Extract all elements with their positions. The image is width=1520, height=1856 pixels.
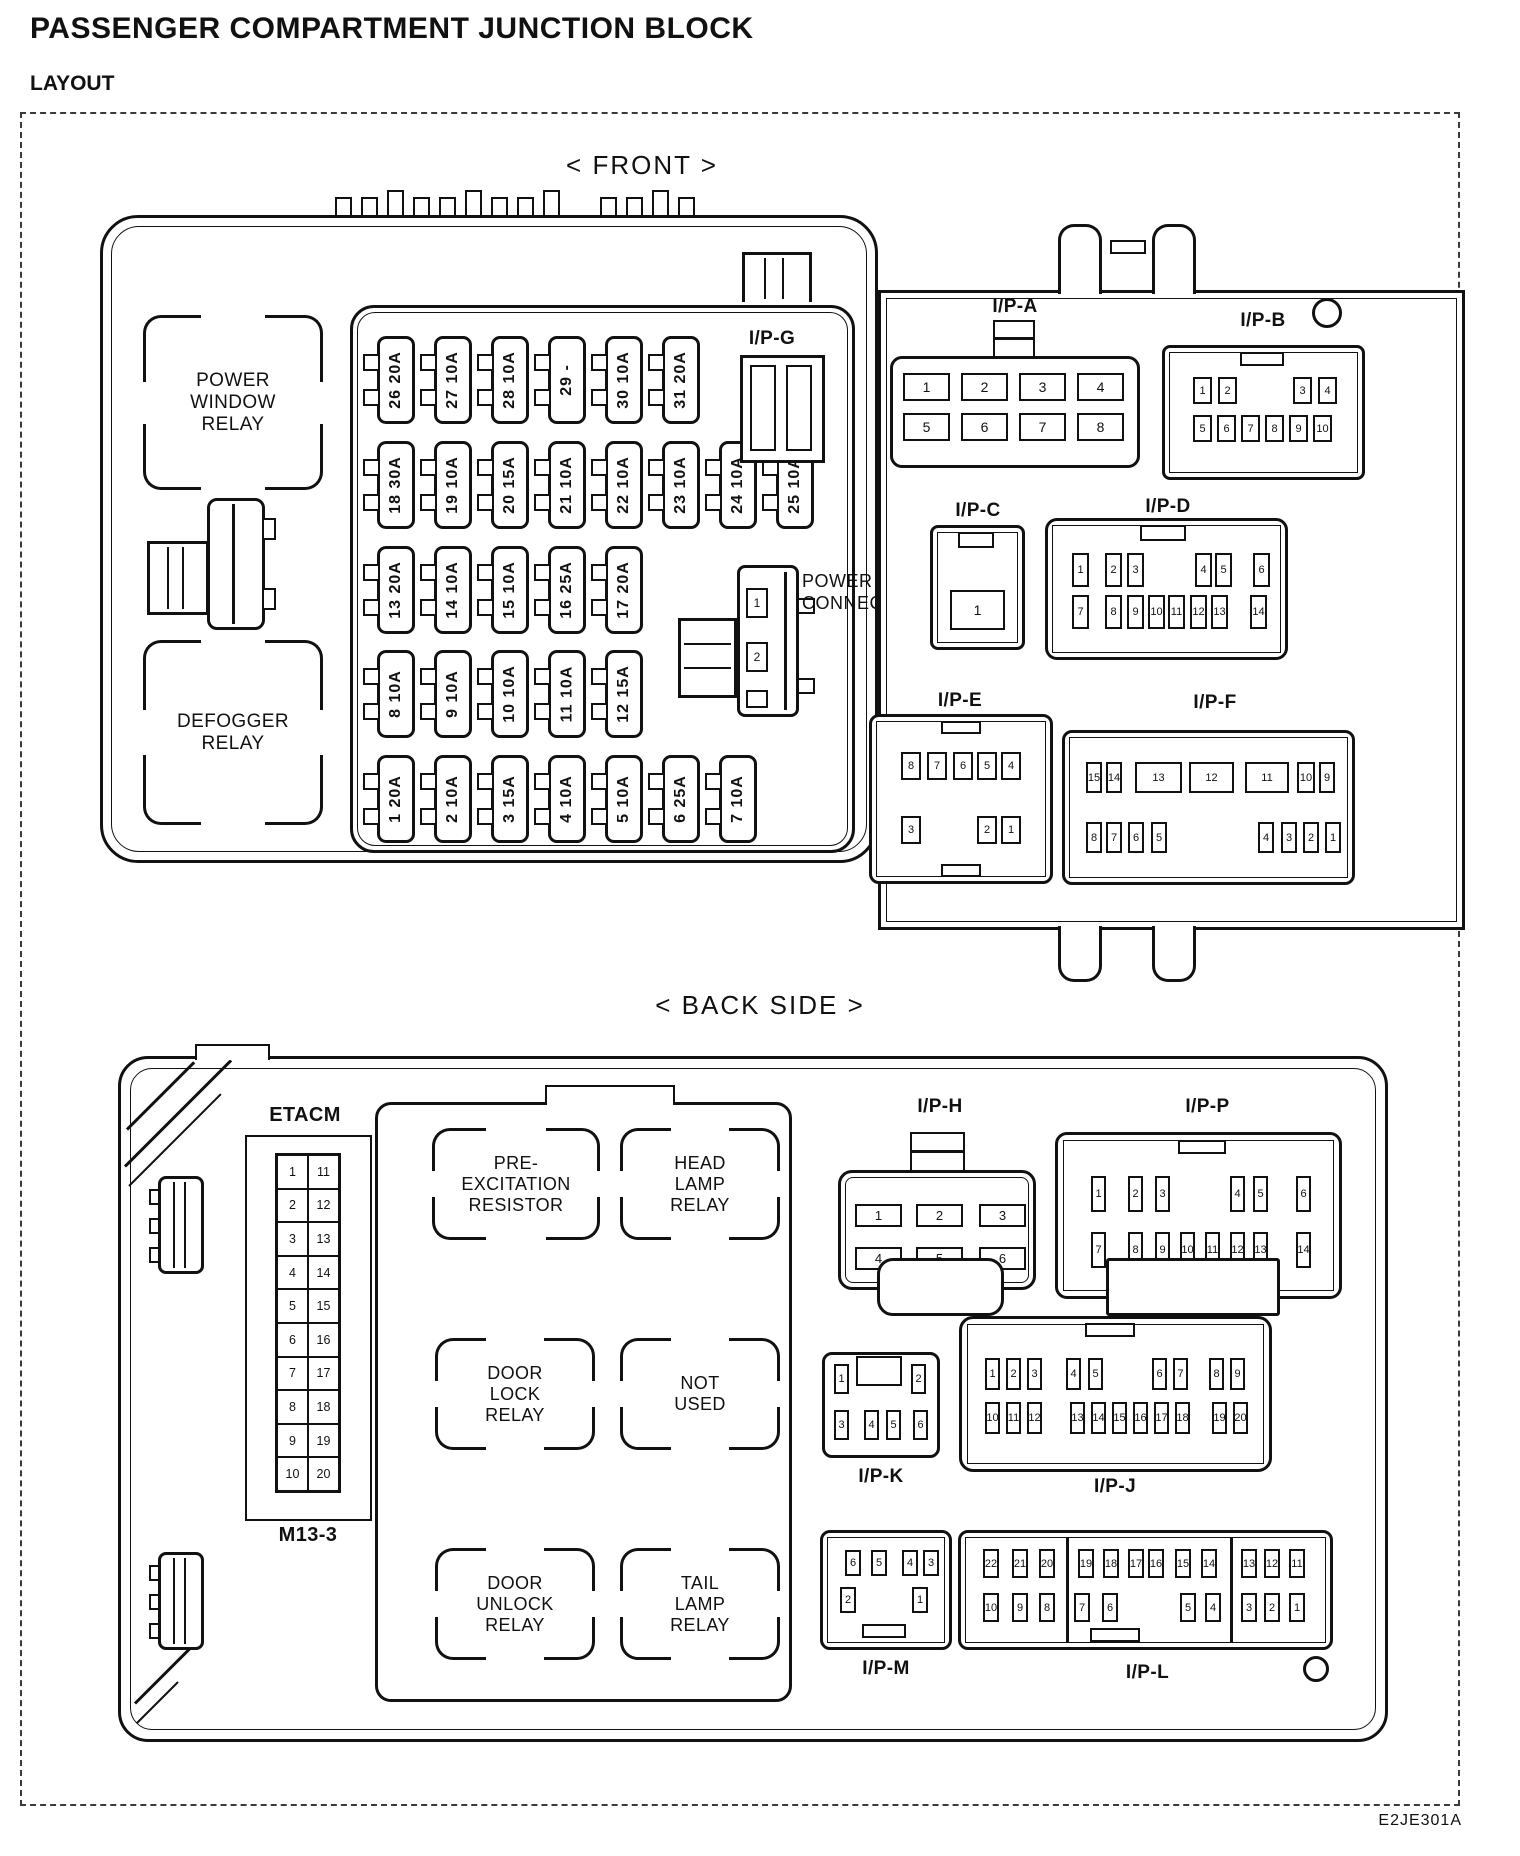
pin-cell: 4 — [1258, 822, 1274, 853]
ipl-notch — [1090, 1628, 1140, 1642]
ipg-label: I/P-G — [707, 328, 837, 350]
etacm-pin-right: 17 — [308, 1357, 339, 1391]
pin-cell: 4 — [1195, 553, 1212, 587]
ipa-label: I/P-A — [940, 296, 1090, 318]
pin-cell: 1 — [1091, 1176, 1106, 1212]
relay-label-line: HEAD — [674, 1153, 726, 1174]
pin-cell: 5 — [871, 1550, 887, 1576]
fuse: 27 10A — [434, 336, 472, 424]
power-connector-prong — [797, 678, 815, 694]
pin-cell: 5 — [1193, 415, 1212, 442]
etacm-pin-left: 3 — [277, 1222, 308, 1256]
ipe-pin-row-2: 321 — [901, 816, 1021, 844]
pin-cell: 15 — [1175, 1549, 1191, 1578]
ipk-label: I/P-K — [822, 1466, 940, 1488]
ipg-teeth — [742, 252, 812, 302]
pin-cell: 14 — [1296, 1232, 1311, 1268]
pin-cell: 9 — [1289, 415, 1308, 442]
pin-cell: 9 — [1319, 762, 1335, 793]
pin-cell: 3 — [1019, 373, 1066, 401]
pin-cell: 6 — [1128, 822, 1144, 853]
ipp-notch — [1178, 1140, 1226, 1154]
fuse: 29 - — [548, 336, 586, 424]
ipf-label: I/P-F — [1150, 692, 1280, 714]
pin-cell: 9 — [1127, 595, 1144, 629]
pin-cell: 7 — [1241, 415, 1260, 442]
pin-cell: 8 — [1105, 595, 1122, 629]
pin-cell: 4 — [902, 1550, 918, 1576]
etacm-pin-row: 6 16 — [277, 1323, 339, 1357]
pin-cell: 7 — [1019, 413, 1066, 441]
relay-housing-step — [545, 1085, 675, 1105]
relay-label-line: DEFOGGER — [177, 711, 289, 733]
head-lamp-relay: HEADLAMPRELAY — [620, 1128, 780, 1240]
pin-cell: 4 — [1318, 377, 1337, 404]
side-connector-tab — [149, 1247, 160, 1263]
pin-cell: 6 — [1253, 553, 1270, 587]
iph-tab-line — [912, 1150, 963, 1153]
relay-label-line: RELAY — [670, 1195, 730, 1216]
pin-cell: 18 — [1103, 1549, 1119, 1578]
pin-cell: 4 — [1205, 1593, 1221, 1622]
pin-cell: 10 — [1297, 762, 1315, 793]
etacm-pin-row: 5 15 — [277, 1289, 339, 1323]
pin-cell: 13 — [1241, 1549, 1257, 1578]
pin-cell: 1 — [950, 590, 1005, 630]
pin-cell: 9 — [1012, 1593, 1028, 1622]
ipm-pin-row-2: 21 — [840, 1587, 928, 1613]
ipa-pin-row-2: 5678 — [903, 413, 1124, 441]
ipg-slot — [750, 365, 776, 451]
relay-label-line: RELAY — [485, 1405, 545, 1426]
panel-top-tab — [1058, 224, 1102, 294]
pin-cell: 1 — [1001, 816, 1021, 844]
relay-label-line: UNLOCK — [476, 1594, 553, 1615]
ipg-slot — [786, 365, 812, 451]
power-window-relay-label: POWERWINDOWRELAY — [143, 315, 323, 490]
pin-cell: 5 — [1088, 1358, 1103, 1390]
pin-cell: 4 — [1001, 752, 1021, 780]
relay-label-line: LAMP — [675, 1594, 726, 1615]
pin-cell: 2 — [916, 1204, 963, 1227]
relay-label-line: RESISTOR — [469, 1195, 564, 1216]
ipc-pin-row: 1 — [950, 590, 1005, 630]
pin-cell: 5 — [1151, 822, 1167, 853]
relay-label-line: RELAY — [485, 1615, 545, 1636]
pin-cell: 7 — [1072, 595, 1089, 629]
door-unlock-relay-label: DOORUNLOCKRELAY — [435, 1548, 595, 1660]
etacm-pin-left: 8 — [277, 1390, 308, 1424]
relay-label-line: LAMP — [675, 1174, 726, 1195]
etacm-pin-right: 19 — [308, 1424, 339, 1458]
pin-cell: 8 — [1209, 1358, 1224, 1390]
pin-cell: 4 — [1077, 373, 1124, 401]
pin-cell: 1 — [903, 373, 950, 401]
relay-label-line: USED — [674, 1394, 726, 1415]
relay-label-line: DOOR — [487, 1363, 543, 1384]
etacm-pin-right: 14 — [308, 1256, 339, 1290]
pin-cell: 17 — [1128, 1549, 1144, 1578]
ipj-notch — [1085, 1323, 1135, 1337]
power-connector-line — [784, 572, 787, 710]
pin-cell: 6 — [1102, 1593, 1118, 1622]
pin-cell: 21 — [1012, 1549, 1028, 1578]
pin-cell: 8 — [901, 752, 921, 780]
pin-cell: 10 — [1313, 415, 1332, 442]
pin-cell: 2 — [961, 373, 1008, 401]
pre-excitation-resistor: PRE-EXCITATIONRESISTOR — [432, 1128, 600, 1240]
ipb-pin-row-1: 1234 — [1193, 377, 1337, 404]
side-connector-tab — [149, 1594, 160, 1610]
figure-code: E2JE301A — [1276, 1812, 1462, 1830]
fuse: 21 10A — [548, 441, 586, 529]
pin-cell: 4 — [1230, 1176, 1245, 1212]
pin-cell: 3 — [979, 1204, 1026, 1227]
etacm-pin-right: 11 — [308, 1155, 339, 1189]
fuse-row-5: 1 20A2 10A3 15A4 10A5 10A6 25A7 10A — [377, 755, 757, 843]
pin-cell: 2 — [1303, 822, 1319, 853]
fuse: 7 10A — [719, 755, 757, 843]
pin-cell: 5 — [1253, 1176, 1268, 1212]
ipe-pin-row-1: 87654 — [901, 752, 1021, 780]
pin-cell: 3 — [834, 1410, 849, 1440]
relay-label-line: RELAY — [202, 414, 265, 436]
pin-cell: 3 — [1241, 1593, 1257, 1622]
etacm-pin-right: 13 — [308, 1222, 339, 1256]
ipf-pin-row-2: 87654321 — [1086, 822, 1341, 853]
fuse: 14 10A — [434, 546, 472, 634]
pin-cell: 8 — [1077, 413, 1124, 441]
pin-cell: 6 — [1217, 415, 1236, 442]
relay-label-line: POWER — [196, 370, 270, 392]
relay-label-line: EXCITATION — [461, 1174, 570, 1195]
pin-cell: 7 — [927, 752, 947, 780]
ipj-connector — [959, 1316, 1272, 1472]
fuse: 20 15A — [491, 441, 529, 529]
ipc-label: I/P-C — [928, 500, 1028, 522]
relay-label-line: NOT — [680, 1373, 719, 1394]
pin-cell: 1 — [1193, 377, 1212, 404]
page-title: PASSENGER COMPARTMENT JUNCTION BLOCK — [30, 12, 754, 46]
fuse: 19 10A — [434, 441, 472, 529]
ipe-connector — [869, 714, 1053, 884]
pin-cell: 14 — [1250, 595, 1267, 629]
fuse-row-3: 13 20A14 10A15 10A16 25A17 20A — [377, 546, 643, 634]
pin-cell: 1 — [1072, 553, 1089, 587]
pin-cell: 1 — [746, 588, 768, 618]
pin-cell: 4 — [864, 1410, 879, 1440]
etacm-pin-row: 10 20 — [277, 1457, 339, 1491]
ipk-pin-row-1: 12 — [834, 1364, 926, 1394]
pin-cell: 8 — [1265, 415, 1284, 442]
fuse: 12 15A — [605, 650, 643, 738]
pin-cell: 7 — [1106, 822, 1122, 853]
defogger-relay: DEFOGGERRELAY — [143, 640, 323, 825]
ipl-label: I/P-L — [1060, 1662, 1235, 1684]
pin-cell: 8 — [1086, 822, 1102, 853]
ipm-notch — [862, 1624, 906, 1638]
power-connector-pins: 12 — [746, 588, 768, 672]
etacm-pin-row: 9 19 — [277, 1424, 339, 1458]
etacm-pin-right: 20 — [308, 1457, 339, 1491]
fuse: 5 10A — [605, 755, 643, 843]
pin-cell: 14 — [1091, 1402, 1106, 1434]
pin-cell: 3 — [901, 816, 921, 844]
relay-label-line: RELAY — [670, 1615, 730, 1636]
power-connector-blank-cell — [746, 690, 768, 708]
pin-cell: 1 — [1325, 822, 1341, 853]
mid-connector-tab — [262, 518, 276, 540]
etacm-pin-row: 3 13 — [277, 1222, 339, 1256]
pin-cell: 11 — [1168, 595, 1185, 629]
pin-cell: 6 — [953, 752, 973, 780]
fuse: 3 15A — [491, 755, 529, 843]
pin-cell: 22 — [983, 1549, 999, 1578]
fuse: 15 10A — [491, 546, 529, 634]
etacm-pin-row: 2 12 — [277, 1189, 339, 1223]
pin-cell: 5 — [1215, 553, 1232, 587]
etacm-label: ETACM — [240, 1104, 370, 1127]
pin-cell: 7 — [1091, 1232, 1106, 1268]
pin-cell: 11 — [1245, 762, 1289, 793]
fuse: 16 25A — [548, 546, 586, 634]
fuse: 17 20A — [605, 546, 643, 634]
ipm-pin-row-1: 6543 — [845, 1550, 939, 1576]
pin-cell: 20 — [1233, 1402, 1248, 1434]
pin-cell: 19 — [1212, 1402, 1227, 1434]
relay-label-line: WINDOW — [190, 392, 276, 414]
ipd-pin-row-1: 123456 — [1072, 553, 1270, 587]
pin-cell: 5 — [977, 752, 997, 780]
side-connector-tab — [149, 1189, 160, 1205]
pin-cell: 9 — [1230, 1358, 1245, 1390]
ipl-pin-row-1: 222120191817161514131211 — [983, 1549, 1305, 1578]
mid-connector-tab — [262, 588, 276, 610]
door-lock-relay-label: DOORLOCKRELAY — [435, 1338, 595, 1450]
section-subtitle: LAYOUT — [30, 72, 114, 96]
ipa-tab-line — [995, 337, 1033, 340]
etacm-pin-left: 5 — [277, 1289, 308, 1323]
pin-cell: 10 — [1148, 595, 1165, 629]
back-heading: < BACK SIDE > — [580, 990, 940, 1021]
pin-cell: 10 — [983, 1593, 999, 1622]
pin-cell: 11 — [1006, 1402, 1021, 1434]
pin-cell: 8 — [1039, 1593, 1055, 1622]
ipb-label: I/P-B — [1188, 310, 1338, 332]
fuse: 13 20A — [377, 546, 415, 634]
power-connector-bracket — [678, 618, 737, 698]
ipa-pin-row-1: 1234 — [903, 373, 1124, 401]
pin-cell: 6 — [1296, 1176, 1311, 1212]
fuse: 2 10A — [434, 755, 472, 843]
ipk-pin-row-2: 3456 — [834, 1410, 928, 1440]
ipf-pin-row-1: 1514131211109 — [1086, 762, 1335, 793]
manual-page: PASSENGER COMPARTMENT JUNCTION BLOCK LAY… — [0, 0, 1520, 1856]
blank-rounded-box — [877, 1258, 1004, 1316]
etacm-pin-row: 8 18 — [277, 1390, 339, 1424]
pin-cell: 6 — [913, 1410, 928, 1440]
fuse: 22 10A — [605, 441, 643, 529]
pin-cell: 15 — [1086, 762, 1102, 793]
pin-cell: 14 — [1201, 1549, 1217, 1578]
pin-cell: 12 — [1264, 1549, 1280, 1578]
side-connector-tab — [149, 1623, 160, 1639]
pin-cell: 4 — [1066, 1358, 1081, 1390]
pre-excitation-resistor-label: PRE-EXCITATIONRESISTOR — [432, 1128, 600, 1240]
pin-cell: 3 — [1293, 377, 1312, 404]
iph-pin-row-1: 123 — [855, 1204, 1026, 1227]
pin-cell: 2 — [1128, 1176, 1143, 1212]
head-lamp-relay-label: HEADLAMPRELAY — [620, 1128, 780, 1240]
ipd-notch — [1140, 525, 1186, 541]
pin-cell: 13 — [1211, 595, 1228, 629]
pin-cell: 2 — [746, 642, 768, 672]
etacm-pin-left: 6 — [277, 1323, 308, 1357]
etacm-pin-row: 4 14 — [277, 1256, 339, 1290]
pin-cell: 7 — [1173, 1358, 1188, 1390]
pin-cell: 11 — [1289, 1549, 1305, 1578]
pin-cell: 6 — [1152, 1358, 1167, 1390]
pin-cell: 20 — [1039, 1549, 1055, 1578]
pin-cell: 14 — [1106, 762, 1122, 793]
ipd-pin-row-2: 7891011121314 — [1072, 595, 1267, 629]
pin-cell: 12 — [1027, 1402, 1042, 1434]
ipj-pin-row-2: 1011121314151617181920 — [985, 1402, 1248, 1434]
pin-cell: 15 — [1112, 1402, 1127, 1434]
fuse: 31 20A — [662, 336, 700, 424]
not-used-label: NOTUSED — [620, 1338, 780, 1450]
pin-cell: 16 — [1148, 1549, 1164, 1578]
pin-cell: 3 — [1281, 822, 1297, 853]
tail-lamp-relay: TAILLAMPRELAY — [620, 1548, 780, 1660]
defogger-relay-label: DEFOGGERRELAY — [143, 640, 323, 825]
fuse: 28 10A — [491, 336, 529, 424]
ipc-notch — [958, 532, 994, 548]
ipb-pin-row-2: 5678910 — [1193, 415, 1332, 442]
panel-top-tab — [1152, 224, 1196, 294]
pin-cell: 3 — [1127, 553, 1144, 587]
pin-cell: 3 — [923, 1550, 939, 1576]
pin-cell: 2 — [1006, 1358, 1021, 1390]
fuse: 9 10A — [434, 650, 472, 738]
not-used-slot: NOTUSED — [620, 1338, 780, 1450]
fuse: 8 10A — [377, 650, 415, 738]
pin-cell: 2 — [1264, 1593, 1280, 1622]
pin-cell: 2 — [1218, 377, 1237, 404]
panel-bottom-tab — [1152, 926, 1196, 982]
door-unlock-relay: DOORUNLOCKRELAY — [435, 1548, 595, 1660]
front-heading: < FRONT > — [482, 150, 802, 181]
pin-cell: 1 — [985, 1358, 1000, 1390]
pin-cell: 2 — [977, 816, 997, 844]
etacm-pin-left: 4 — [277, 1256, 308, 1290]
etacm-pin-left: 2 — [277, 1189, 308, 1223]
blank-rect-box — [1106, 1258, 1280, 1316]
pin-cell: 2 — [1105, 553, 1122, 587]
iph-label: I/P-H — [865, 1096, 1015, 1118]
pin-cell: 10 — [985, 1402, 1000, 1434]
ipd-label: I/P-D — [1083, 496, 1253, 518]
ipe-label: I/P-E — [895, 690, 1025, 712]
side-connector — [158, 1176, 204, 1274]
side-connector-tab — [149, 1218, 160, 1234]
door-lock-relay: DOORLOCKRELAY — [435, 1338, 595, 1450]
etacm-pin-row: 1 11 — [277, 1155, 339, 1189]
etacm-pin-table: 1 11 2 12 3 13 4 14 5 15 6 16 7 17 8 — [275, 1153, 341, 1493]
ipe-notch — [941, 864, 981, 877]
tail-lamp-relay-label: TAILLAMPRELAY — [620, 1548, 780, 1660]
ipe-notch — [941, 721, 981, 734]
ipb-notch — [1240, 352, 1284, 366]
etacm-code: M13-3 — [243, 1524, 373, 1547]
relay-label-line: LOCK — [490, 1384, 541, 1405]
side-connector-tab — [149, 1565, 160, 1581]
ipj-pin-row-1: 123456789 — [985, 1358, 1245, 1390]
fuse: 30 10A — [605, 336, 643, 424]
etacm-pin-right: 18 — [308, 1390, 339, 1424]
pin-cell: 7 — [1074, 1593, 1090, 1622]
ipl-pin-row-2: 10987654321 — [983, 1593, 1305, 1622]
pin-cell: 6 — [961, 413, 1008, 441]
fuse: 11 10A — [548, 650, 586, 738]
etacm-pin-right: 16 — [308, 1323, 339, 1357]
etacm-pin-right: 15 — [308, 1289, 339, 1323]
pin-cell: 2 — [840, 1587, 856, 1613]
ipl-connector — [958, 1530, 1333, 1650]
mid-connector-body — [207, 498, 265, 630]
fuse: 18 30A — [377, 441, 415, 529]
panel-bottom-tab — [1058, 926, 1102, 982]
mid-connector-line — [232, 504, 235, 624]
mid-connector-plug — [147, 541, 209, 615]
pin-cell: 13 — [1070, 1402, 1085, 1434]
relay-label-line: TAIL — [681, 1573, 719, 1594]
ipf-connector — [1062, 730, 1355, 885]
ipp-pin-row-1: 123456 — [1091, 1176, 1311, 1212]
fuse: 23 10A — [662, 441, 700, 529]
relay-label-line: DOOR — [487, 1573, 543, 1594]
ipj-label: I/P-J — [1040, 1476, 1190, 1498]
pin-cell: 17 — [1154, 1402, 1169, 1434]
fuse-row-4: 8 10A9 10A10 10A11 10A12 15A — [377, 650, 643, 738]
fuse: 10 10A — [491, 650, 529, 738]
pin-cell: 12 — [1190, 595, 1207, 629]
etacm-pin-left: 1 — [277, 1155, 308, 1189]
ipm-label: I/P-M — [820, 1658, 952, 1680]
pin-cell: 3 — [1027, 1358, 1042, 1390]
ipp-label: I/P-P — [1130, 1096, 1285, 1118]
pin-cell: 3 — [1155, 1176, 1170, 1212]
pin-cell: 5 — [886, 1410, 901, 1440]
power-window-relay: POWERWINDOWRELAY — [143, 315, 323, 490]
back-case-top-tab — [195, 1044, 270, 1060]
panel-top-notch — [1110, 240, 1146, 254]
pin-cell: 13 — [1135, 762, 1182, 793]
relay-label-line: PRE- — [494, 1153, 539, 1174]
pin-cell: 18 — [1175, 1402, 1190, 1434]
fuse: 4 10A — [548, 755, 586, 843]
pin-cell: 5 — [1180, 1593, 1196, 1622]
fuse-row-1: 26 20A27 10A28 10A29 -30 10A31 20A — [377, 336, 700, 424]
relay-label-line: RELAY — [202, 733, 265, 755]
etacm-pin-left: 10 — [277, 1457, 308, 1491]
pin-cell: 5 — [903, 413, 950, 441]
pin-cell: 1 — [855, 1204, 902, 1227]
pin-cell: 2 — [911, 1364, 926, 1394]
fuse: 26 20A — [377, 336, 415, 424]
pin-cell: 1 — [912, 1587, 928, 1613]
etacm-pin-row: 7 17 — [277, 1357, 339, 1391]
